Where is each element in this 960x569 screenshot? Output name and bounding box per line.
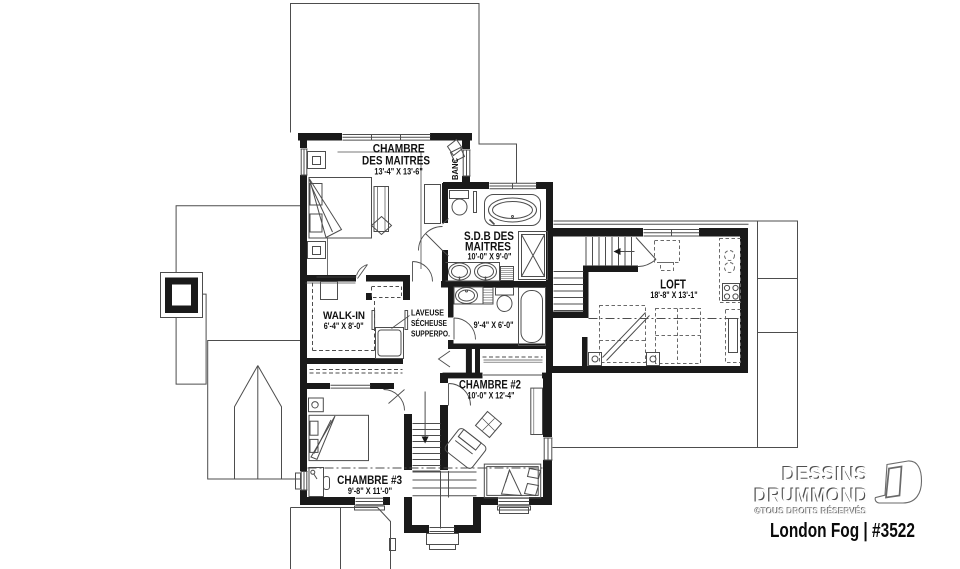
svg-text:9'-4" X 6'-0": 9'-4" X 6'-0" <box>474 319 514 330</box>
svg-text:10'-0" X 12'-4": 10'-0" X 12'-4" <box>468 389 515 400</box>
svg-text:6'-4" X 8'-0": 6'-4" X 8'-0" <box>324 320 364 331</box>
svg-text:9'-8" X 11'-0": 9'-8" X 11'-0" <box>348 485 392 496</box>
svg-text:London Fog | #3522: London Fog | #3522 <box>770 519 915 541</box>
svg-text:BANC: BANC <box>451 158 460 180</box>
svg-text:©TOUS DROITS RÉSERVÉS: ©TOUS DROITS RÉSERVÉS <box>755 506 867 517</box>
svg-text:SÉCHEUSE: SÉCHEUSE <box>411 318 447 328</box>
svg-text:LAVEUSE: LAVEUSE <box>411 308 444 318</box>
svg-text:18'-8" X 13'-1": 18'-8" X 13'-1" <box>650 289 697 300</box>
svg-text:SUPPERPO.: SUPPERPO. <box>411 329 450 339</box>
svg-text:10'-0" X 9'-0": 10'-0" X 9'-0" <box>468 250 512 261</box>
svg-text:13'-4" X 13'-6": 13'-4" X 13'-6" <box>374 166 422 177</box>
svg-text:DESSINS: DESSINS <box>782 464 868 486</box>
